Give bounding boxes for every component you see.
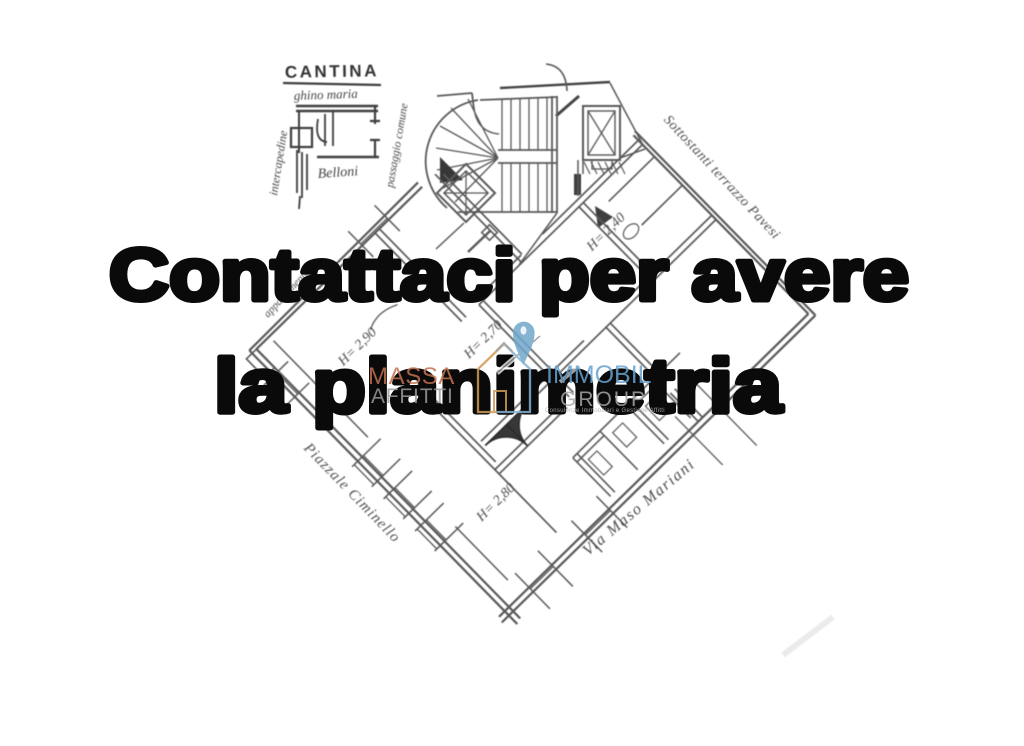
svg-text:Via Maso Mariani: Via Maso Mariani	[580, 456, 699, 560]
svg-text:la planimetria: la planimetria	[214, 344, 783, 429]
svg-text:Belloni: Belloni	[317, 164, 358, 182]
svg-text:ghino maria: ghino maria	[294, 86, 359, 103]
svg-text:H= 2,80: H= 2,80	[473, 481, 518, 526]
svg-text:passaggio comune: passaggio comune	[384, 102, 411, 189]
svg-text:Contattaci per avere: Contattaci per avere	[109, 235, 909, 316]
svg-text:Consulenze Immobiliari e Gesti: Consulenze Immobiliari e Gestione Affitt…	[545, 408, 665, 414]
svg-text:Sottostanti terrazzo Pavesi: Sottostanti terrazzo Pavesi	[660, 113, 783, 243]
svg-text:intercapedine: intercapedine	[266, 129, 290, 197]
svg-text:AFFITTI: AFFITTI	[371, 385, 454, 408]
svg-text:CANTINA: CANTINA	[285, 61, 379, 82]
svg-text:IMMOBIL: IMMOBIL	[546, 361, 652, 389]
